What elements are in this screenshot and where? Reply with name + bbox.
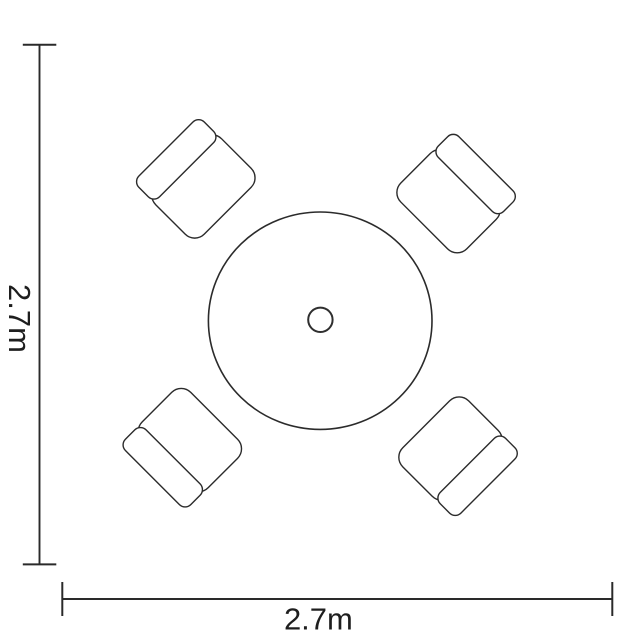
svg-text:2.7m: 2.7m	[2, 284, 37, 353]
svg-text:2.7m: 2.7m	[284, 602, 353, 637]
